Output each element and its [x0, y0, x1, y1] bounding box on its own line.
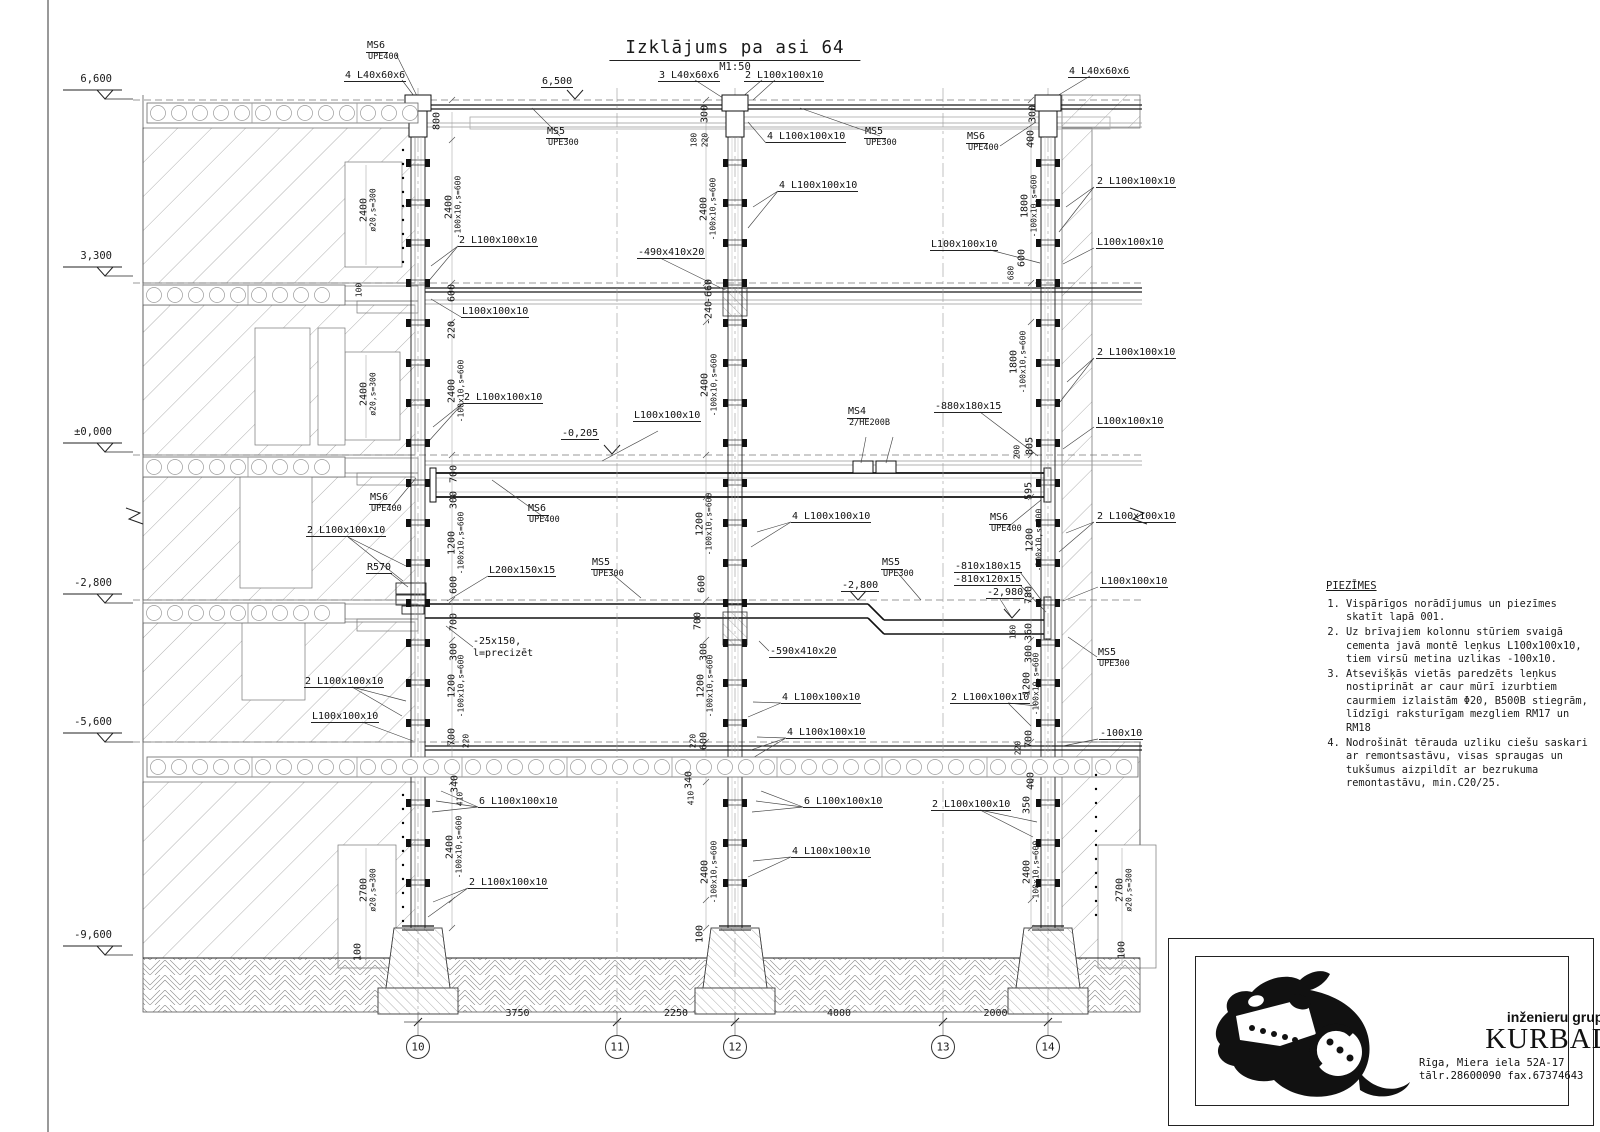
hollow-core-slab	[147, 103, 418, 123]
notes-heading: PIEZĪMES	[1326, 580, 1594, 594]
ground	[143, 958, 1140, 1012]
hollow-core-slab	[143, 457, 345, 477]
company-contacts: tālr.28600090 fax.67374643	[1419, 1070, 1583, 1082]
hollow-core-slab	[143, 285, 345, 305]
drawing-title: Izklājums pa asi 64	[609, 38, 860, 61]
level-arrows	[567, 90, 1020, 618]
note-item: Vispārīgos norādījumus un piezīmes skatī…	[1346, 598, 1594, 625]
hollow-core-slab	[147, 757, 1138, 777]
notes-list: Vispārīgos norādījumus un piezīmes skatī…	[1326, 598, 1594, 791]
note-item: Nodrošināt tērauda uzliku ciešu saskari …	[1346, 737, 1594, 791]
drawing-scale: M1:50	[719, 61, 751, 73]
note-item: Atsevišķās vietās paredzēts leņkus nosti…	[1346, 668, 1594, 736]
company-name: KURBADS	[1393, 1023, 1600, 1056]
drawing-sheet: MS6UPE4004 L40x60x66,5003 L40x60x62 L100…	[0, 0, 1600, 1132]
notes-panel: PIEZĪMES Vispārīgos norādījumus un piezī…	[1326, 580, 1594, 792]
note-item: Uz brīvajiem kolonnu stūriem svaigā ceme…	[1346, 626, 1594, 667]
title-block: inženieru grupa KURBADS Rīga, Miera iela…	[1168, 938, 1594, 1126]
hollow-core-slab	[143, 603, 345, 623]
company-address: Rīga, Miera iela 52A-17	[1419, 1057, 1564, 1069]
